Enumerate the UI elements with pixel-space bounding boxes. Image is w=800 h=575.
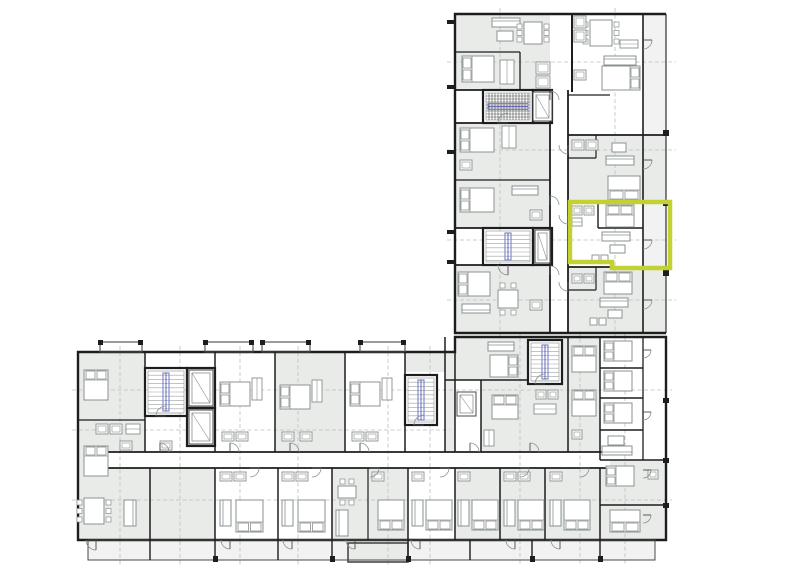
bed-icon [518,500,544,530]
fixture-icon [548,390,558,399]
table-icon [497,31,513,41]
table-icon [77,498,111,524]
sofa-icon [512,186,538,195]
sofa-icon [458,500,469,526]
wall-stub [406,556,411,562]
wall-stub [306,340,311,345]
elevator [457,392,476,416]
wall-stub [663,458,669,463]
sofa-icon [604,56,636,65]
bed-icon [458,272,490,296]
fixture-icon [234,472,246,481]
sofa-icon [550,500,561,526]
fixture-icon [220,472,232,481]
wardrobe-icon [484,430,494,446]
floorplan-canvas [0,0,800,575]
wall-stub [98,340,103,345]
fixture-icon [110,424,122,434]
elevator [189,370,213,406]
elevator [189,410,213,444]
corridor [550,90,568,333]
sofa-icon [602,446,632,455]
wardrobe-icon [382,378,392,400]
sofa-icon [220,500,231,526]
wall-stub [447,260,455,264]
fixture-icon [599,318,606,325]
fixture-icon [590,318,597,325]
fixture-icon [530,210,542,220]
table-icon [517,22,549,44]
sofa-icon [336,510,348,536]
bed-icon [472,500,498,530]
fixture-icon [530,300,542,310]
wall-stub [447,150,455,154]
wall-stub [401,340,406,345]
bed-icon [426,500,452,530]
table-icon [608,310,622,318]
sofa-icon [488,342,514,351]
wardrobe-icon [572,218,582,226]
sofa-icon [600,298,628,307]
bed-icon [84,446,108,476]
wall-stub [249,340,254,345]
table-icon [610,245,625,253]
fixture-icon [504,472,516,481]
bed-icon [572,346,596,372]
bed-icon [280,385,310,409]
elevator [535,230,550,263]
bed-icon [604,403,632,423]
fixture-icon [572,274,582,283]
bed-icon [604,272,632,294]
table-icon [608,436,624,445]
sofa-icon [492,18,520,27]
fixture-icon [574,70,586,80]
fixture-icon [366,432,378,441]
wall-stub [447,230,455,234]
wall-stub [203,340,208,345]
wall-stub [138,340,143,345]
bed-icon [350,382,380,406]
fixture-icon [296,472,308,481]
sofa-icon [606,156,634,165]
corridor [98,452,610,468]
bed-icon [298,500,325,532]
bed-icon [604,341,632,361]
floor-plan-svg [0,0,800,575]
stairs [486,231,530,262]
bed-icon [236,500,263,532]
fixture-icon [458,472,470,481]
fixture-icon [460,160,472,170]
elevator [533,92,552,121]
fixture-icon [536,62,550,74]
balcony [100,342,142,352]
fixture-icon [584,274,594,283]
wardrobe-icon [534,404,556,414]
fixture-icon [222,432,234,441]
bed-icon [606,466,634,486]
sofa-icon [504,500,515,526]
sofa-icon [282,500,293,526]
fixture-icon [282,432,294,441]
wall-stub [260,340,265,345]
fixture-icon [586,140,598,150]
bed-icon [606,205,634,227]
stairs [486,93,530,120]
stairs [148,371,184,413]
wall-stub [213,556,218,562]
bed-icon [610,510,640,532]
bed-icon [378,500,404,530]
fixture-icon [300,432,312,441]
bed-icon [602,66,640,90]
wardrobe-icon [500,60,514,84]
fixture-icon [236,432,248,441]
fixture-icon [96,424,108,434]
sofa-icon [124,500,136,526]
wall-stub [663,503,669,508]
wardrobe-icon [126,424,140,434]
fixture-icon [282,472,294,481]
wall-stub [530,556,535,562]
bed-icon [490,355,518,377]
sofa-icon [602,232,630,241]
wardrobe-icon [252,378,262,400]
wardrobe-icon [312,380,322,402]
stairs [531,343,559,381]
bed-icon [492,395,518,419]
fixture-icon [574,16,586,28]
fixture-icon [412,472,424,481]
balcony [360,342,405,352]
fixture-icon [572,206,582,215]
wall-stub [663,270,669,276]
bed-icon [462,56,494,82]
wardrobe-icon [620,40,638,48]
bed-icon [84,370,108,400]
balcony [262,342,310,352]
fixture-icon [572,430,582,439]
wall-stub [358,340,363,345]
table-icon [612,143,626,152]
fixture-icon [572,140,584,150]
bed-icon [604,371,632,391]
wall-stub [598,556,603,562]
wall-stub [447,85,455,89]
fixture-icon [352,432,364,441]
bed-icon [220,382,250,406]
wall-stub [663,398,669,403]
bed-icon [608,176,640,200]
fixture-icon [536,76,550,88]
bed-icon [460,128,494,152]
balcony [348,543,408,562]
bed-icon [572,390,596,416]
fixture-icon [574,30,586,42]
fixture-icon [536,390,546,399]
fixture-icon [584,206,594,215]
sofa-icon [412,500,423,526]
wall-stub [447,20,455,24]
sofa-icon [462,304,490,313]
wall-stub [330,556,335,562]
fixture-icon [550,472,562,481]
fixture-icon [120,441,132,450]
bed-icon [460,188,494,212]
bed-icon [564,500,590,530]
wardrobe-icon [502,126,516,148]
wall-stub [663,130,669,136]
balcony [205,342,253,352]
